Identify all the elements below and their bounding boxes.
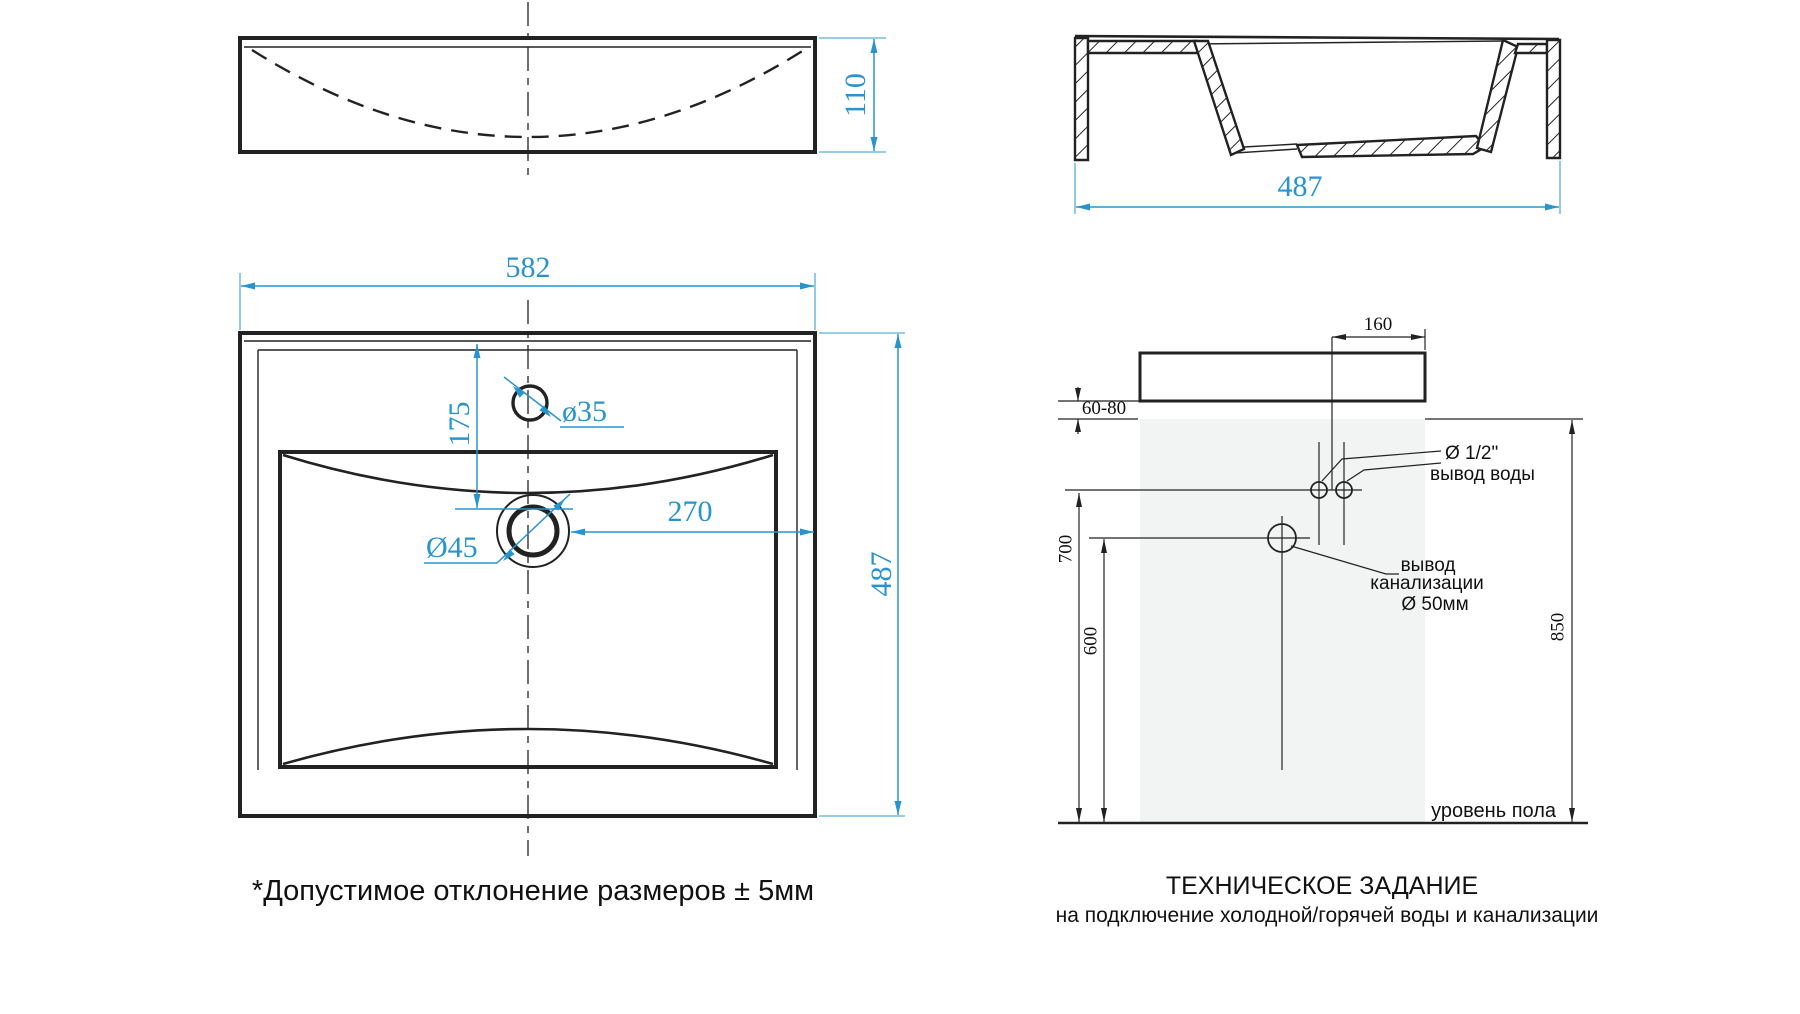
dim-487p-arrow-bottom xyxy=(895,801,902,815)
dim-850-arrow-top xyxy=(1569,420,1575,434)
dim-700-label: 700 xyxy=(1055,535,1076,564)
dim-110-label: 110 xyxy=(839,73,872,117)
dim-850-arrow-bottom xyxy=(1569,808,1575,822)
dim-600-label: 600 xyxy=(1080,627,1101,656)
title-line2: на подключение холодной/горячей воды и к… xyxy=(1056,904,1599,927)
section-channel-line2 xyxy=(1244,144,1297,147)
floor-label: уровень пола xyxy=(1431,800,1557,822)
dim-175-label: 175 xyxy=(443,402,476,447)
water-label-line1: Ø 1/2" xyxy=(1445,443,1498,464)
dim-700-arrow-top xyxy=(1076,493,1082,507)
dim-270-arrow-left xyxy=(571,529,585,536)
dim-110-arrow-top xyxy=(871,39,878,53)
dim-45-label: Ø45 xyxy=(426,531,478,564)
dim-487s-label: 487 xyxy=(1278,170,1323,203)
dim-6080-arrow-down xyxy=(1075,388,1081,401)
section-deck-right xyxy=(1515,44,1547,53)
dim-35-label: ø35 xyxy=(562,395,607,428)
drawing-canvas: 110 487 xyxy=(0,0,1800,1014)
dim-160-arrow-left xyxy=(1332,334,1346,340)
dim-600-arrow-bottom xyxy=(1101,808,1107,822)
drain-hole xyxy=(509,507,557,555)
dim-487s-arrow-right xyxy=(1545,204,1559,211)
section-right-slope xyxy=(1477,40,1518,152)
dim-6080-arrow-up xyxy=(1075,419,1081,432)
dim-487p-arrow-top xyxy=(895,334,902,348)
dim-850-label: 850 xyxy=(1547,613,1568,642)
dim-582-arrow-right xyxy=(800,283,814,290)
installation-diagram: 160 60-80 Ø 1/2" вывод воды вывод канали… xyxy=(1055,314,1598,927)
section-right-wall xyxy=(1547,40,1560,158)
dim-160-label: 160 xyxy=(1364,314,1393,335)
cabinet xyxy=(1140,353,1425,401)
dim-6080-label: 60-80 xyxy=(1082,398,1126,419)
dim-582-arrow-left xyxy=(241,283,255,290)
dim-175-arrow-top xyxy=(474,344,481,358)
dim-175-arrow-bottom xyxy=(474,494,481,508)
front-view: 110 xyxy=(240,2,886,176)
dim-110-arrow-bottom xyxy=(871,137,878,151)
section-bottom-slab xyxy=(1297,136,1485,157)
dim-487s-arrow-left xyxy=(1076,204,1090,211)
dim-582-label: 582 xyxy=(506,251,551,284)
section-left-wall xyxy=(1075,38,1088,160)
drain-label-line3: Ø 50мм xyxy=(1401,594,1468,615)
technical-drawing-sheet: 110 487 xyxy=(0,0,1800,1014)
dim-270-arrow-right xyxy=(800,529,814,536)
dim-270-label: 270 xyxy=(668,495,713,528)
tolerance-note: *Допустимое отклонение размеров ± 5мм xyxy=(252,875,814,907)
section-top-edge xyxy=(1075,36,1559,39)
dim-600-arrow-top xyxy=(1101,539,1107,553)
title-line1: ТЕХНИЧЕСКОЕ ЗАДАНИЕ xyxy=(1166,872,1478,900)
water-label-line2: вывод воды xyxy=(1430,464,1535,485)
section-view: 487 xyxy=(1075,36,1560,214)
dim-160-arrow-right xyxy=(1411,334,1425,340)
plan-view: 582 487 175 270 ø35 Ø45 xyxy=(240,251,905,856)
section-left-slope xyxy=(1194,41,1244,155)
dim-700-arrow-bottom xyxy=(1076,808,1082,822)
dim-487p-label: 487 xyxy=(865,552,898,597)
drain-label-line2: канализации xyxy=(1370,573,1483,594)
section-deck-left xyxy=(1088,41,1201,53)
